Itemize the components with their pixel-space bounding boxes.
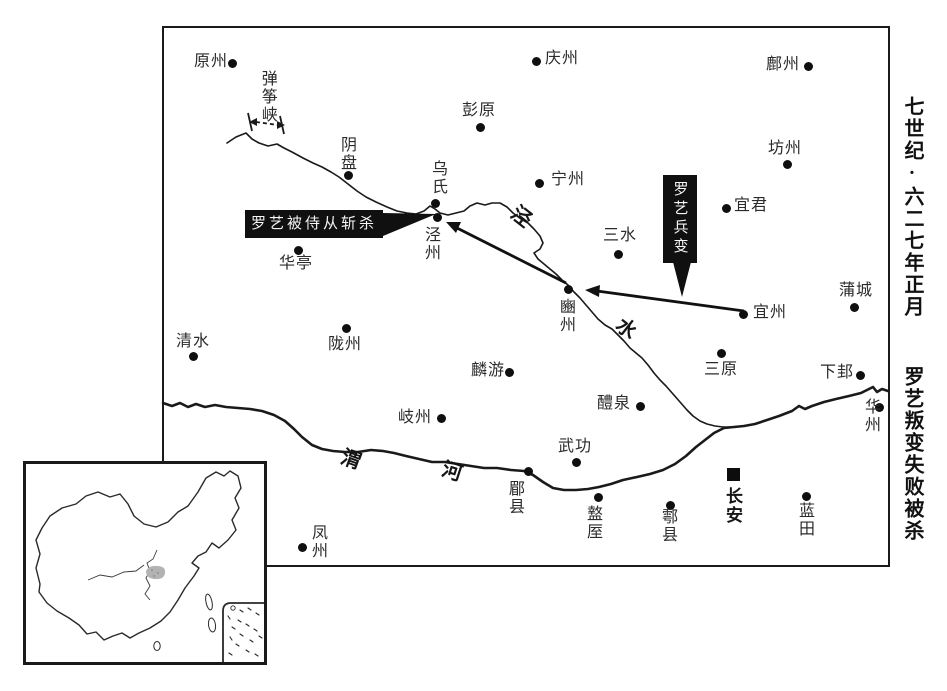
capital-square-marker — [727, 468, 740, 481]
city-dot-原州 — [228, 59, 237, 68]
city-label-乌氏: 乌氏 — [428, 160, 445, 196]
city-label-清水: 清水 — [176, 334, 210, 351]
city-dot-泾州 — [433, 213, 442, 222]
callout-luoyi-mutiny: 罗艺兵变 — [663, 175, 697, 263]
scs-islet — [231, 606, 235, 610]
china-outline — [36, 471, 241, 640]
city-label-蒲城: 蒲城 — [839, 283, 873, 300]
city-label-豳州: 豳州 — [556, 298, 573, 334]
side-title: 七世纪·六二七年正月 罗艺叛变失败被杀 — [901, 96, 923, 656]
city-label-华亭: 华亭 — [279, 256, 313, 273]
city-label-盩厔: 盩厔 — [583, 505, 600, 541]
city-label-宁州: 宁州 — [551, 172, 585, 189]
city-label-原州: 原州 — [194, 54, 228, 71]
city-dot-三水 — [614, 250, 623, 259]
city-dot-鄜州 — [804, 62, 813, 71]
city-label-彭原: 彭原 — [462, 103, 496, 120]
city-dot-麟游 — [505, 368, 514, 377]
city-label-陇州: 陇州 — [328, 337, 362, 354]
side-title-event: 罗艺叛变失败被杀 — [901, 366, 923, 542]
city-label-三水: 三水 — [603, 228, 637, 245]
island-dashes — [228, 608, 262, 656]
city-label-泾州: 泾州 — [421, 226, 438, 262]
city-label-麟游: 麟游 — [471, 363, 505, 380]
city-dot-坊州 — [783, 160, 792, 169]
hainan-island — [154, 642, 160, 651]
highlight-region — [146, 566, 165, 579]
taiwan-island — [204, 594, 213, 611]
inset-drawing — [26, 464, 264, 662]
city-dot-宜君 — [722, 204, 731, 213]
city-dot-华亭 — [294, 246, 303, 255]
side-title-era: 七世纪·六二七年正月 — [901, 96, 923, 318]
city-label-鄠县: 鄠县 — [658, 508, 675, 544]
city-dot-蓝田 — [802, 492, 811, 501]
city-label-庆州: 庆州 — [545, 51, 579, 68]
historical-map-page: 原州庆州鄜州彭原坊州阴盘乌氏泾州宁州宜君三水华亭豳州宜州蒲城清水陇州三原下邽麟游… — [0, 0, 947, 691]
city-dot-三原 — [717, 349, 726, 358]
city-dot-乌氏 — [431, 199, 440, 208]
city-label-宜君: 宜君 — [734, 198, 768, 215]
city-dot-豳州 — [564, 285, 573, 294]
gorge-label: 弹筝峡 — [258, 70, 275, 124]
capital-label: 长安 — [724, 487, 741, 525]
city-label-醴泉: 醴泉 — [597, 396, 631, 413]
city-dot-郿县 — [524, 467, 533, 476]
callout-luoyi-killed: 罗艺被侍从斩杀 — [245, 210, 383, 238]
city-dot-清水 — [189, 352, 198, 361]
city-dot-宜州 — [739, 310, 748, 319]
city-label-郿县: 郿县 — [505, 480, 522, 516]
city-dot-陇州 — [342, 324, 351, 333]
city-label-凤州: 凤州 — [308, 524, 325, 560]
city-label-华州: 华州 — [861, 398, 878, 434]
city-label-武功: 武功 — [558, 439, 592, 456]
city-dot-凤州 — [298, 543, 307, 552]
city-dot-醴泉 — [636, 402, 645, 411]
city-dot-下邽 — [856, 371, 865, 380]
city-dot-蒲城 — [850, 303, 859, 312]
city-dot-盩厔 — [594, 493, 603, 502]
city-dot-彭原 — [476, 123, 485, 132]
city-label-坊州: 坊州 — [768, 141, 802, 158]
city-dot-宁州 — [535, 179, 544, 188]
city-label-蓝田: 蓝田 — [795, 502, 812, 538]
city-dot-武功 — [572, 458, 581, 467]
city-label-三原: 三原 — [704, 362, 738, 379]
city-dot-庆州 — [532, 57, 541, 66]
penghu-island — [208, 618, 217, 633]
city-dot-岐州 — [437, 414, 446, 423]
internal-boundaries — [88, 550, 157, 600]
city-label-岐州: 岐州 — [398, 410, 432, 427]
city-label-宜州: 宜州 — [753, 305, 787, 322]
inset-china-map — [23, 461, 267, 665]
city-label-下邽: 下邽 — [820, 365, 854, 382]
city-label-鄜州: 鄜州 — [766, 57, 800, 74]
city-label-阴盘: 阴盘 — [337, 136, 354, 172]
